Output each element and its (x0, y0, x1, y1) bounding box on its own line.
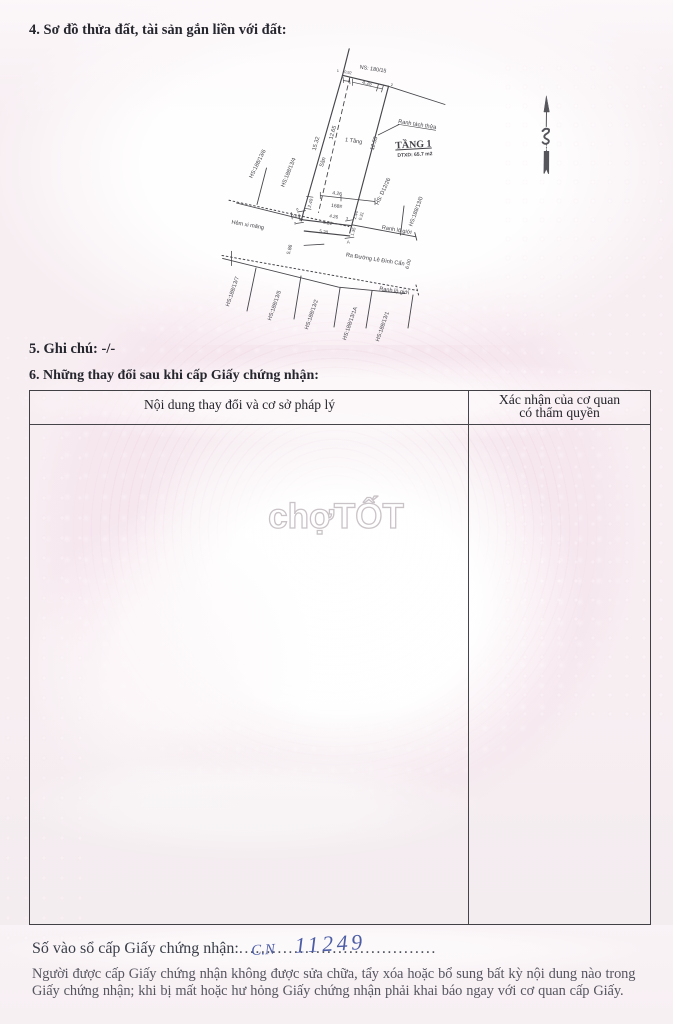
svg-text:9: 9 (294, 221, 297, 226)
svg-text:Hẻm xi măng: Hẻm xi măng (231, 220, 264, 232)
svg-text:1 Tầng: 1 Tầng (345, 137, 363, 145)
svg-text:Ranh tách thửa: Ranh tách thửa (398, 118, 438, 131)
svg-text:TẦNG 1: TẦNG 1 (395, 137, 432, 152)
svg-text:4.26: 4.26 (332, 190, 343, 197)
svg-text:6: 6 (296, 207, 299, 212)
svg-text:HS:188/13/4: HS:188/13/4 (280, 157, 297, 188)
svg-text:NS: 180/15: NS: 180/15 (359, 65, 387, 75)
svg-text:5.20: 5.20 (319, 229, 329, 235)
svg-text:0.92: 0.92 (344, 69, 352, 75)
svg-text:DTXD: 65.7 m2: DTXD: 65.7 m2 (397, 151, 432, 159)
svg-text:4.25: 4.25 (362, 80, 373, 88)
svg-text:15.32: 15.32 (312, 136, 322, 151)
svg-text:HS: D12/26: HS: D12/26 (375, 177, 393, 206)
svg-text:A: A (347, 240, 351, 245)
svg-text:5.86: 5.86 (286, 244, 294, 255)
svg-text:4.26: 4.26 (329, 213, 339, 219)
svg-text:2.40: 2.40 (307, 198, 314, 208)
svg-text:HS:188/13/1A: HS:188/13/1A (342, 306, 359, 341)
svg-text:Ranh lộ giới: Ranh lộ giới (381, 225, 412, 236)
svg-text:168#: 168# (331, 203, 343, 210)
svg-text:12.53: 12.53 (370, 136, 380, 151)
svg-text:HS:188/13/0: HS:188/13/0 (408, 196, 424, 227)
svg-text:HS:188/13/1: HS:188/13/1 (375, 311, 391, 342)
svg-text:2: 2 (391, 82, 394, 87)
svg-text:HS:188/13/5: HS:188/13/5 (267, 290, 283, 321)
svg-text:HS:188/13/2: HS:188/13/2 (304, 299, 320, 330)
svg-text:HS:188/13/7: HS:188/13/7 (225, 276, 241, 307)
svg-text:1: 1 (337, 68, 340, 73)
svg-text:6.00: 6.00 (405, 259, 413, 270)
svg-text:5.21: 5.21 (323, 220, 333, 226)
svg-text:3: 3 (346, 216, 349, 221)
svg-text:Sân: Sân (319, 157, 328, 168)
svg-text:Ra Đường Lê Đình Cẩn: Ra Đường Lê Đình Cẩn (345, 251, 405, 267)
